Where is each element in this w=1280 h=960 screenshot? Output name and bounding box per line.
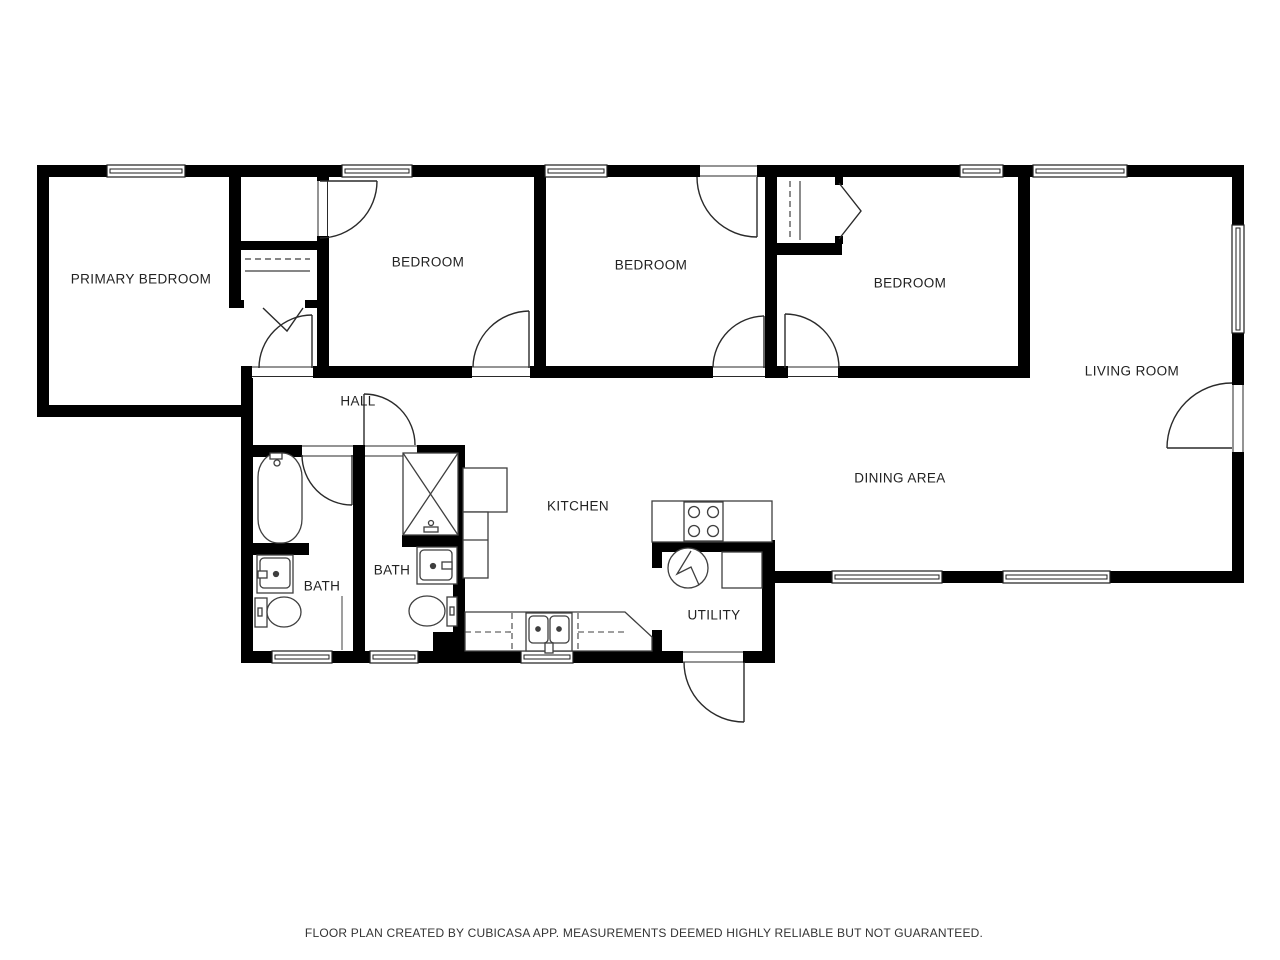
door-bedroom2	[713, 316, 764, 368]
door-living-room-entry	[1167, 383, 1232, 448]
wall-shower-half	[402, 535, 458, 547]
bathtub	[258, 453, 302, 543]
wall-tub-half	[253, 543, 309, 555]
window	[545, 165, 607, 177]
window	[107, 165, 185, 177]
wall-bedroom2-bedroom3	[765, 165, 777, 378]
wall-bedroom3-closet	[765, 243, 842, 255]
door-bedroom3	[785, 314, 839, 368]
door-utility-exterior	[684, 662, 744, 722]
kitchen-sink	[526, 613, 572, 653]
wall-hall-left	[241, 366, 253, 663]
laundry-appliance	[722, 552, 762, 588]
window	[832, 571, 942, 583]
wall-utility-top	[652, 542, 772, 552]
shower	[403, 453, 458, 535]
window	[1033, 165, 1127, 177]
wall-bedrooms-hall	[241, 366, 1030, 378]
door-bath2	[364, 394, 415, 445]
wall-left	[37, 165, 49, 417]
door-bedroom2-exterior	[697, 177, 757, 237]
window	[272, 651, 332, 663]
vanity-sink	[417, 547, 457, 584]
walls-layer	[37, 165, 1244, 663]
wall-utility-right	[762, 540, 775, 663]
closet-jamb-left	[229, 300, 244, 308]
wall-kitchen-step	[433, 632, 465, 651]
stove-cooktop	[652, 501, 772, 542]
vanity-sink	[257, 555, 293, 593]
wall-primary-bottom	[37, 405, 253, 417]
wall-closet-divider	[229, 241, 320, 250]
window	[1232, 225, 1244, 333]
closet-jamb-right	[305, 300, 317, 308]
floor-plan-page: PRIMARY BEDROOM BEDROOM BEDROOM BEDROOM …	[0, 0, 1280, 960]
bedroom3-closet-jamb-bottom	[835, 236, 843, 244]
toilet	[409, 596, 457, 626]
floor-plan-drawing	[0, 0, 1280, 960]
wall-primary-east	[229, 165, 241, 305]
bifold-chevron-bedroom3-closet	[839, 183, 861, 239]
bifold-chevron-primary-closet	[263, 308, 303, 331]
wall-bedroom1-bedroom2	[534, 165, 546, 378]
refrigerator	[463, 468, 507, 512]
door-bath1	[302, 455, 352, 505]
door-bedroom1	[473, 311, 529, 368]
wall-bath-divider	[353, 445, 365, 663]
door-primary-suite	[259, 315, 312, 368]
wall-utility-left-bottom	[652, 630, 662, 663]
wall-livingroom-west	[1018, 165, 1030, 378]
fixtures-layer	[255, 453, 772, 653]
window	[370, 651, 418, 663]
window	[960, 165, 1003, 177]
water-heater	[668, 548, 708, 588]
window	[1003, 571, 1110, 583]
window	[342, 165, 412, 177]
toilet	[255, 597, 301, 627]
